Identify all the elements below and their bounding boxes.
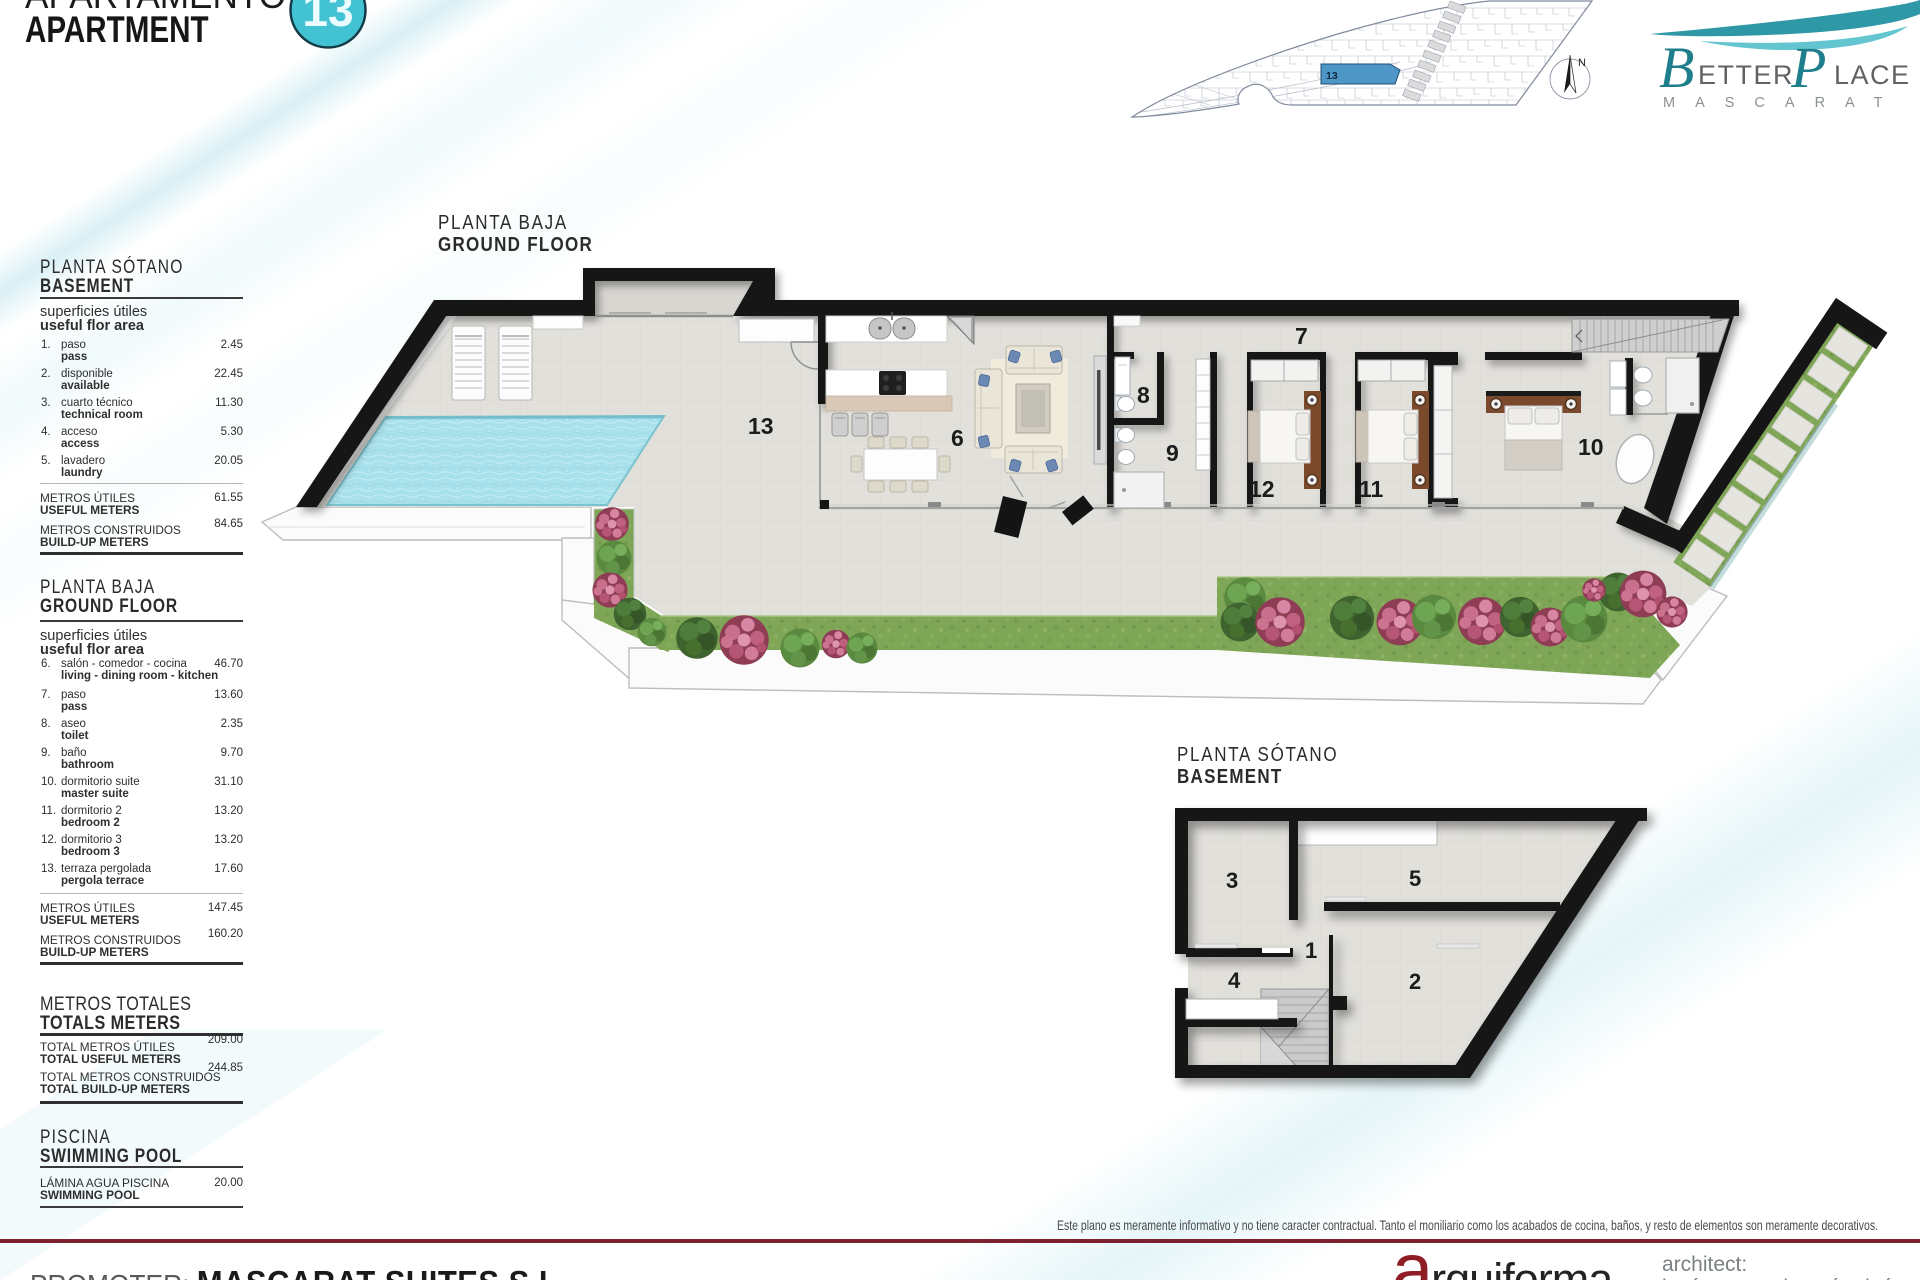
svg-text:B: B	[1659, 35, 1694, 100]
svg-text:1: 1	[1305, 938, 1317, 963]
svg-text:13: 13	[1326, 70, 1338, 82]
svg-text:6: 6	[951, 425, 964, 451]
svg-text:13: 13	[748, 413, 774, 439]
svg-text:9: 9	[1166, 440, 1179, 466]
svg-text:10: 10	[1578, 434, 1604, 460]
svg-text:8: 8	[1137, 382, 1150, 408]
svg-text:12: 12	[1249, 476, 1275, 502]
svg-text:4: 4	[1228, 968, 1241, 993]
svg-text:7: 7	[1295, 323, 1308, 349]
svg-text:5: 5	[1409, 866, 1421, 891]
svg-text:MASCARAT: MASCARAT	[1663, 95, 1903, 111]
svg-text:11: 11	[1359, 476, 1384, 502]
svg-text:2: 2	[1409, 969, 1421, 994]
svg-text:LACE: LACE	[1834, 60, 1911, 90]
svg-text:3: 3	[1226, 868, 1238, 893]
svg-text:N: N	[1578, 57, 1586, 69]
svg-text:ETTER: ETTER	[1698, 60, 1794, 90]
svg-text:P: P	[1790, 35, 1826, 100]
